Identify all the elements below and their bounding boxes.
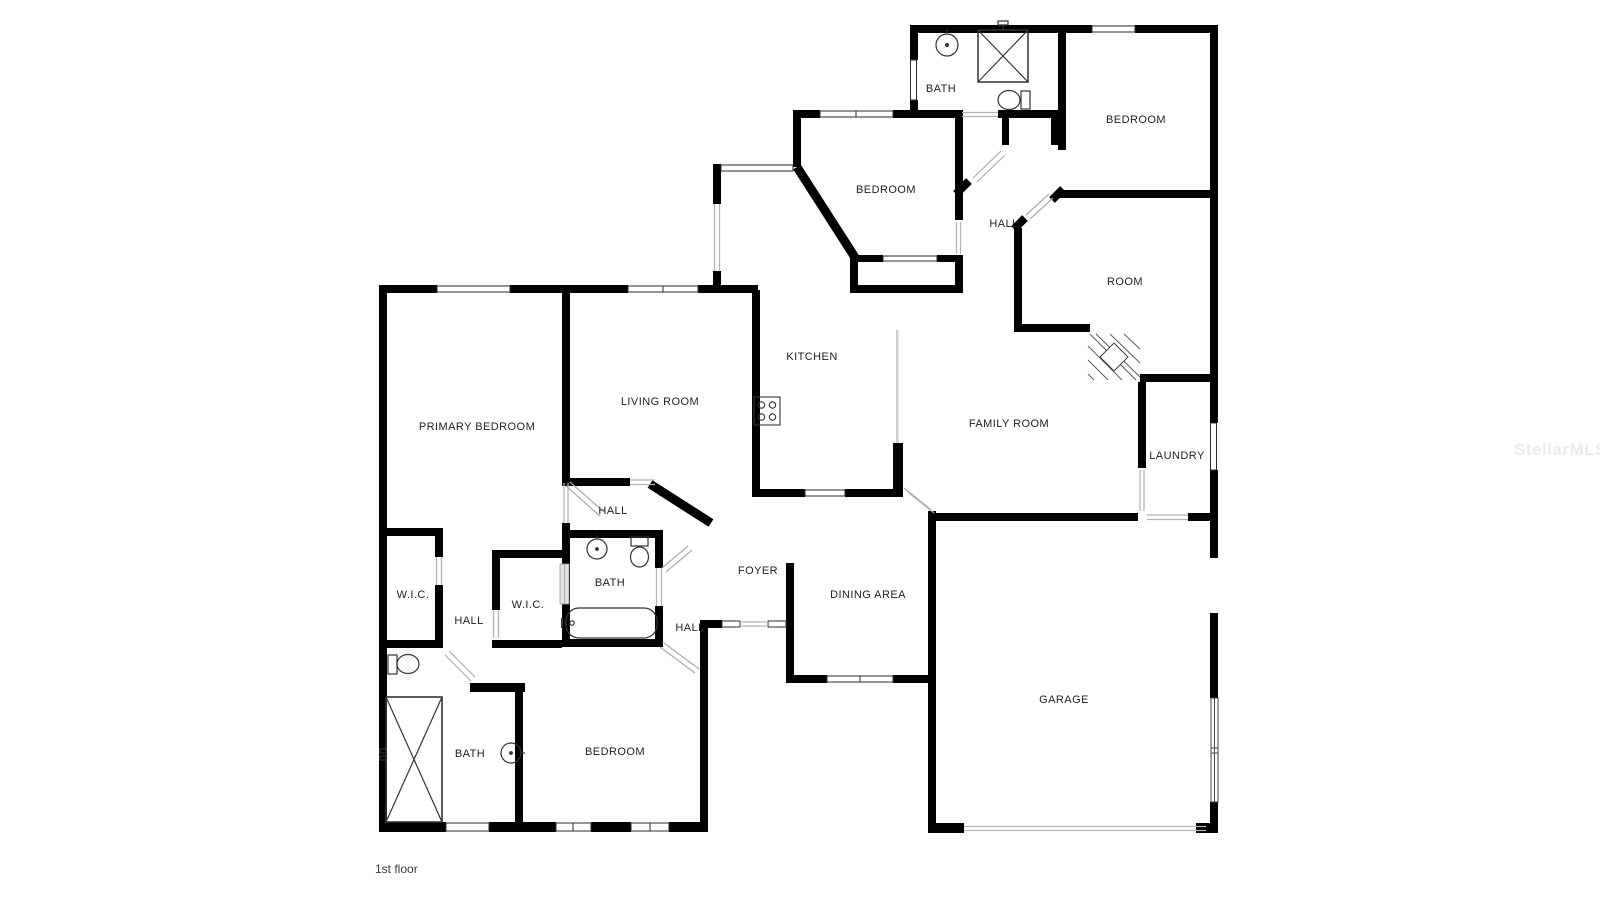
bathtub-icon (562, 608, 657, 638)
staircase (1088, 334, 1140, 380)
room-label-bedroom-lower: BEDROOM (585, 746, 645, 758)
room-label-bath-upper: BATH (926, 83, 956, 95)
floor-label: 1st floor (375, 862, 418, 876)
room-label-living-room: LIVING ROOM (621, 396, 699, 408)
floor-plan-page: BATHBEDROOMBEDROOMHALLROOMLAUNDRYKITCHEN… (0, 0, 1600, 899)
room-label-hall-upper: HALL (989, 218, 1018, 230)
garage-door-icon (1211, 698, 1218, 802)
floor-plan-drawing (0, 0, 1600, 899)
room-label-bath-center: BATH (595, 577, 625, 589)
doors-layer (437, 113, 1207, 831)
windows-layer (437, 26, 1217, 831)
room-label-hall-left: HALL (454, 615, 483, 627)
room-label-bath-lower: BATH (455, 748, 485, 760)
room-label-bedroom-upper-right: BEDROOM (1106, 114, 1166, 126)
shower-lower-icon (380, 697, 442, 822)
room-label-wic-center: W.I.C. (512, 599, 545, 611)
toilet-center-icon (631, 537, 649, 567)
room-label-room: ROOM (1107, 276, 1143, 288)
room-label-kitchen: KITCHEN (786, 351, 837, 363)
room-label-hall-center: HALL (598, 505, 627, 517)
toilet-upper-icon (998, 91, 1030, 110)
room-label-garage: GARAGE (1039, 694, 1089, 706)
room-label-bedroom-middle: BEDROOM (856, 184, 916, 196)
room-label-laundry: LAUNDRY (1149, 450, 1205, 462)
shower-upper-icon (978, 21, 1028, 82)
room-label-hall-lower: HALL (675, 622, 704, 634)
toilet-lower-icon (388, 655, 419, 675)
counter-line (896, 330, 899, 443)
room-label-family-room: FAMILY ROOM (969, 418, 1049, 430)
room-label-primary-bedroom: PRIMARY BEDROOM (419, 421, 535, 433)
room-label-foyer: FOYER (738, 565, 778, 577)
room-label-wic-left: W.I.C. (397, 589, 430, 601)
room-label-dining-area: DINING AREA (830, 589, 906, 601)
watermark: StellarMLS (1514, 440, 1600, 460)
